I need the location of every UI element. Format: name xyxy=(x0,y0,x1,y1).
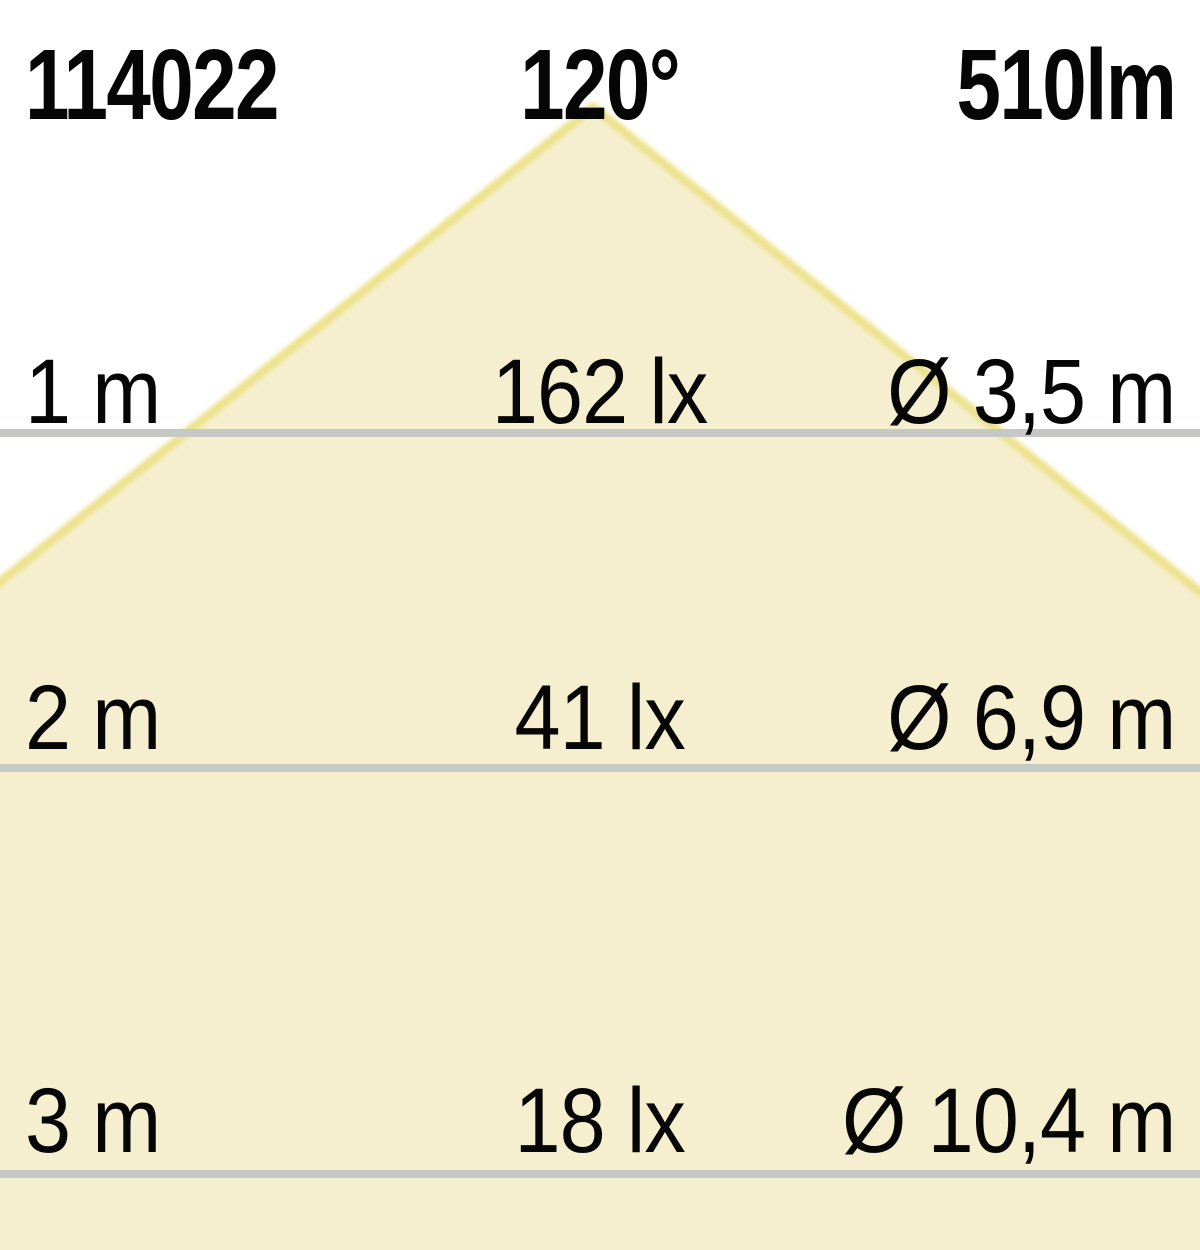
illuminance-value: 162 lx xyxy=(427,346,772,438)
distance-label: 3 m xyxy=(25,1075,370,1167)
table-row: 2 m 41 lx Ø 6,9 m xyxy=(25,672,1175,764)
table-row: 1 m 162 lx Ø 3,5 m xyxy=(25,346,1175,438)
illuminance-value: 41 lx xyxy=(427,672,772,764)
diameter-value: Ø 10,4 m xyxy=(830,1075,1175,1167)
article-number: 114022 xyxy=(25,35,332,135)
light-cone-diagram: 114022 120° 510lm 1 m 162 lx Ø 3,5 m 2 m… xyxy=(0,0,1200,1250)
diameter-value: Ø 3,5 m xyxy=(830,346,1175,438)
illuminance-value: 18 lx xyxy=(427,1075,772,1167)
light-cone-graphic xyxy=(0,0,1200,1250)
header-row: 114022 120° 510lm xyxy=(25,35,1175,135)
beam-angle: 120° xyxy=(447,35,754,135)
diameter-value: Ø 6,9 m xyxy=(830,672,1175,764)
distance-label: 1 m xyxy=(25,346,370,438)
table-row: 3 m 18 lx Ø 10,4 m xyxy=(25,1075,1175,1167)
luminous-flux: 510lm xyxy=(868,35,1175,135)
distance-label: 2 m xyxy=(25,672,370,764)
